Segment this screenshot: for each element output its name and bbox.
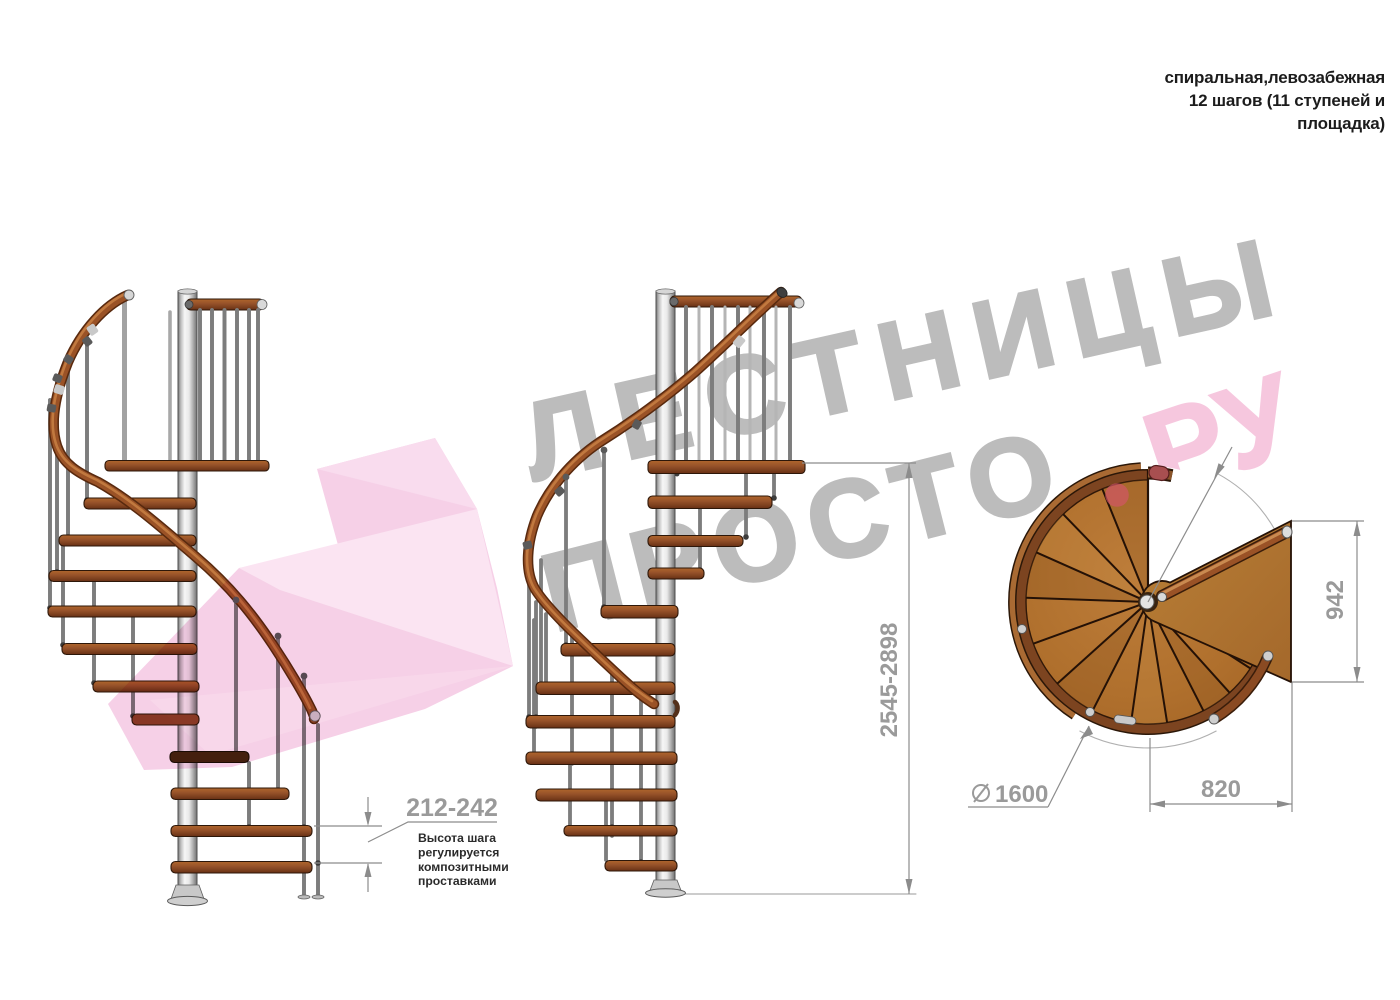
svg-text:820: 820	[1201, 776, 1241, 803]
svg-text:Высота шага: Высота шага	[418, 831, 496, 845]
svg-text:12 шагов (11 ступеней и: 12 шагов (11 ступеней и	[1189, 91, 1385, 110]
svg-text:площадка): площадка)	[1297, 114, 1385, 133]
svg-text:942: 942	[1322, 580, 1349, 620]
svg-text:2545-2898: 2545-2898	[876, 623, 903, 738]
svg-text:212-242: 212-242	[406, 794, 498, 822]
svg-text:регулируется: регулируется	[418, 845, 499, 859]
svg-text:спиральная,левозабежная: спиральная,левозабежная	[1164, 68, 1385, 87]
svg-text:проставками: проставками	[418, 874, 497, 888]
svg-text:композитными: композитными	[418, 860, 509, 874]
svg-text:1600: 1600	[995, 781, 1048, 808]
